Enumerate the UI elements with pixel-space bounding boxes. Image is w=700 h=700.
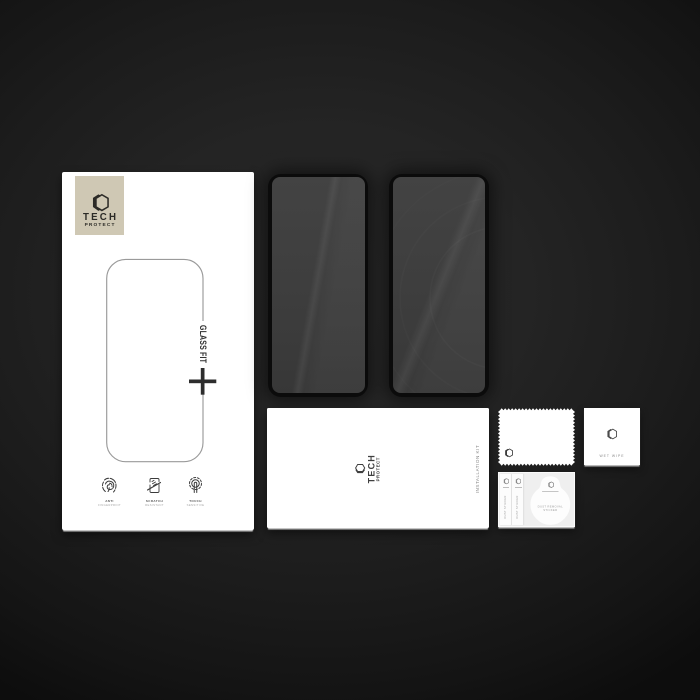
- svg-text:STICKER: STICKER: [544, 507, 558, 511]
